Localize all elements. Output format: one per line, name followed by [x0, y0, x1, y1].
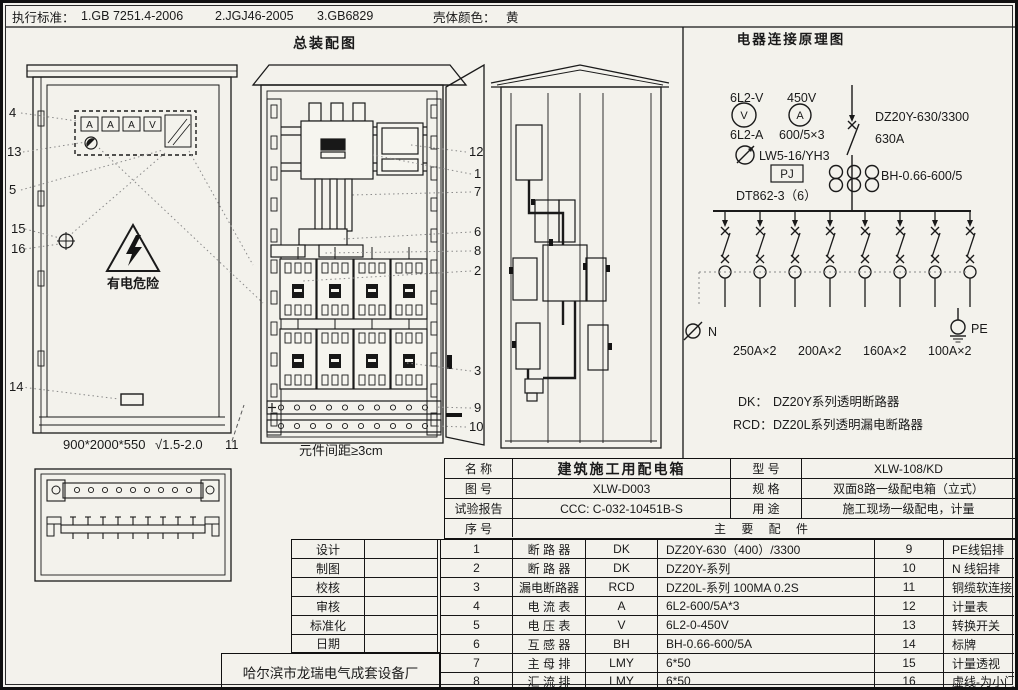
svg-text:16: 16 [11, 241, 25, 256]
part-name2: 虚线-为小门 [944, 673, 1014, 689]
part-spec: BH-0.66-600/5A [658, 635, 875, 654]
model-value: XLW-108/KD [802, 459, 1015, 479]
branch-rating-labels: 250A×2 200A×2 160A×2 100A×2 [733, 344, 971, 358]
sign-check: 校核 [292, 578, 365, 597]
part-name: 断 路 器 [513, 559, 586, 578]
part-no: 4 [441, 597, 513, 616]
svg-text:BH-0.66-600/5: BH-0.66-600/5 [881, 169, 962, 183]
pe-label: PE [971, 322, 988, 336]
part-spec: 6L2-0-450V [658, 616, 875, 635]
svg-text:600/5×3: 600/5×3 [779, 128, 825, 142]
part-no2: 9 [875, 540, 944, 559]
ct-symbol-1 [830, 166, 843, 192]
svg-text:12: 12 [469, 144, 483, 159]
svg-text:15: 15 [11, 221, 25, 236]
part-name: 汇 流 排 [513, 673, 586, 689]
component-spacing-note: 元件间距≥3cm [299, 443, 383, 458]
name-value: 建筑施工用配电箱 [513, 459, 731, 479]
ct-symbol-2 [848, 166, 861, 192]
svg-text:200A×2: 200A×2 [798, 344, 841, 358]
breaker-rows [280, 247, 427, 389]
svg-text:6L2-V: 6L2-V [730, 91, 764, 105]
ct-symbol-3 [866, 166, 879, 192]
sign-review: 审核 [292, 597, 365, 616]
meter-v-label: V [149, 120, 156, 131]
use-value: 施工现场一级配电，计量 [802, 499, 1015, 519]
svg-text:10: 10 [469, 419, 483, 434]
main-breaker-and-meter [271, 103, 427, 257]
svg-text:2: 2 [474, 263, 481, 278]
drawing-no-value: XLW-D003 [513, 479, 731, 499]
svg-text:3: 3 [474, 363, 481, 378]
svg-text:630A: 630A [875, 132, 905, 146]
drawing-no-label: 图 号 [445, 479, 513, 499]
part-no2: 15 [875, 654, 944, 673]
part-name2: 标牌 [944, 635, 1014, 654]
spec-label: 规 格 [731, 479, 802, 499]
use-label: 用 途 [731, 499, 802, 519]
parts-header: 主 要 配 件 [513, 519, 1015, 537]
sign-draft-blank [365, 559, 438, 578]
name-label: 名 称 [445, 459, 513, 479]
sign-design-blank [365, 540, 438, 559]
part-code: RCD [586, 578, 658, 597]
svg-text:4: 4 [9, 105, 16, 120]
svg-text:13: 13 [7, 144, 21, 159]
model-label: 型 号 [731, 459, 802, 479]
meter-a3-label: A [128, 120, 135, 131]
sign-check-blank [365, 578, 438, 597]
sign-draft: 制图 [292, 559, 365, 578]
sign-date-blank [365, 635, 438, 652]
schematic-branches [719, 211, 976, 307]
part-name2: PE线铝排 [944, 540, 1014, 559]
sign-date: 日期 [292, 635, 365, 652]
engineering-drawing-sheet: 执行标准： 1.GB 7251.4-2006 2.JGJ46-2005 3.GB… [0, 0, 1018, 690]
part-no2: 13 [875, 616, 944, 635]
surface-finish: √1.5-2.0 [155, 437, 203, 452]
part-name2: 转换开关 [944, 616, 1014, 635]
svg-text:14: 14 [9, 379, 23, 394]
svg-text:1: 1 [474, 166, 481, 181]
svg-text:9: 9 [474, 400, 481, 415]
schematic-meter-symbols: V A PJ [740, 110, 804, 181]
busbar-detail-view [35, 469, 231, 581]
front-callout-numbers: 4 13 5 15 16 14 [7, 105, 25, 394]
note-dk-desc: DZ20Y系列透明断路器 [773, 394, 900, 409]
schematic-title: 电器连接原理图 [737, 31, 846, 47]
svg-text:250A×2: 250A×2 [733, 344, 776, 358]
part-code: V [586, 616, 658, 635]
sign-standardize: 标准化 [292, 616, 365, 635]
part-name: 漏电断路器 [513, 578, 586, 597]
test-report-label: 试验报告 [445, 499, 513, 519]
part-no: 5 [441, 616, 513, 635]
parts-list-table: 1 断 路 器 DK DZ20Y-630（400）/3300 9 PE线铝排 2… [440, 539, 1016, 690]
test-report-value: CCC: C-032-10451B-S [513, 499, 731, 519]
svg-text:160A×2: 160A×2 [863, 344, 906, 358]
part-no: 6 [441, 635, 513, 654]
part-name2: 计量表 [944, 597, 1014, 616]
sign-design: 设计 [292, 540, 365, 559]
meter-box-pj: PJ [780, 169, 793, 181]
electric-danger-label: 有电危险 [107, 276, 160, 291]
part-no2: 12 [875, 597, 944, 616]
note-rcd-code: RCD： [733, 418, 773, 432]
side-view-cabinet [491, 65, 669, 448]
callout-11: 11 [225, 437, 239, 452]
pe-symbol [950, 308, 966, 342]
part-spec: 6L2-600/5A*3 [658, 597, 875, 616]
part-code: A [586, 597, 658, 616]
svg-text:100A×2: 100A×2 [928, 344, 971, 358]
part-no2: 10 [875, 559, 944, 578]
svg-text:LW5-16/YH3: LW5-16/YH3 [759, 149, 830, 163]
part-spec: DZ20Y-系列 [658, 559, 875, 578]
svg-text:450V: 450V [787, 91, 817, 105]
part-name: 断 路 器 [513, 540, 586, 559]
part-spec: DZ20L-系列 100MA 0.2S [658, 578, 875, 597]
part-name2: 计量透视 [944, 654, 1014, 673]
voltmeter-symbol: V [740, 110, 748, 122]
part-no: 7 [441, 654, 513, 673]
assembly-title: 总装配图 [293, 35, 357, 51]
sign-standardize-blank [365, 616, 438, 635]
sign-review-blank [365, 597, 438, 616]
neutral-label: N [708, 325, 717, 339]
door-callout-leader [232, 405, 244, 441]
spec-value: 双面8路一级配电箱（立式） [802, 479, 1015, 499]
part-name: 电 压 表 [513, 616, 586, 635]
part-no: 3 [441, 578, 513, 597]
note-dk-code: DK： [738, 395, 768, 409]
part-spec: 6*50 [658, 654, 875, 673]
cabinet-dimensions: 900*2000*550 [63, 437, 145, 452]
neutral-pe-busbars [267, 401, 441, 432]
title-block-table: 名 称 建筑施工用配电箱 型 号 XLW-108/KD 图 号 XLW-D003… [444, 458, 1016, 539]
svg-text:7: 7 [474, 184, 481, 199]
meter-a1-label: A [86, 120, 93, 131]
part-code: LMY [586, 654, 658, 673]
part-code: BH [586, 635, 658, 654]
part-name: 电 流 表 [513, 597, 586, 616]
part-no: 1 [441, 540, 513, 559]
svg-text:DZ20Y-630/3300: DZ20Y-630/3300 [875, 110, 969, 124]
svg-text:5: 5 [9, 182, 16, 197]
internal-callout-numbers: 12 1 7 6 8 2 3 9 10 [469, 144, 483, 434]
front-view-meter-labels: A A A V [86, 120, 156, 131]
svg-text:DT862-3（6）: DT862-3（6） [736, 189, 817, 203]
ammeter-symbol: A [796, 110, 804, 122]
signature-block: 设计 制图 校核 审核 标准化 日期 [291, 539, 440, 653]
front-callout-leaders [21, 113, 263, 399]
part-code: LMY [586, 673, 658, 689]
part-name2: 铜缆软连接 [944, 578, 1014, 597]
serial-header: 序 号 [445, 519, 513, 537]
part-name: 互 感 器 [513, 635, 586, 654]
part-no2: 11 [875, 578, 944, 597]
schematic-notes: DK： DZ20Y系列透明断路器 RCD： DZ20L系列透明漏电断路器 [733, 394, 924, 432]
neutral-symbol [684, 322, 702, 340]
part-code: DK [586, 540, 658, 559]
part-spec: DZ20Y-630（400）/3300 [658, 540, 875, 559]
note-rcd-desc: DZ20L系列透明漏电断路器 [773, 417, 924, 432]
part-name: 主 母 排 [513, 654, 586, 673]
svg-text:6: 6 [474, 224, 481, 239]
part-name2: N 线铝排 [944, 559, 1014, 578]
part-no2: 16 [875, 673, 944, 689]
part-no: 8 [441, 673, 513, 689]
svg-text:6L2-A: 6L2-A [730, 128, 764, 142]
part-no: 2 [441, 559, 513, 578]
part-no2: 14 [875, 635, 944, 654]
part-code: DK [586, 559, 658, 578]
svg-text:8: 8 [474, 243, 481, 258]
factory-name-box: 哈尔滨市龙瑞电气成套设备厂 [221, 653, 440, 690]
meter-a2-label: A [107, 120, 114, 131]
part-spec: 6*50 [658, 673, 875, 689]
